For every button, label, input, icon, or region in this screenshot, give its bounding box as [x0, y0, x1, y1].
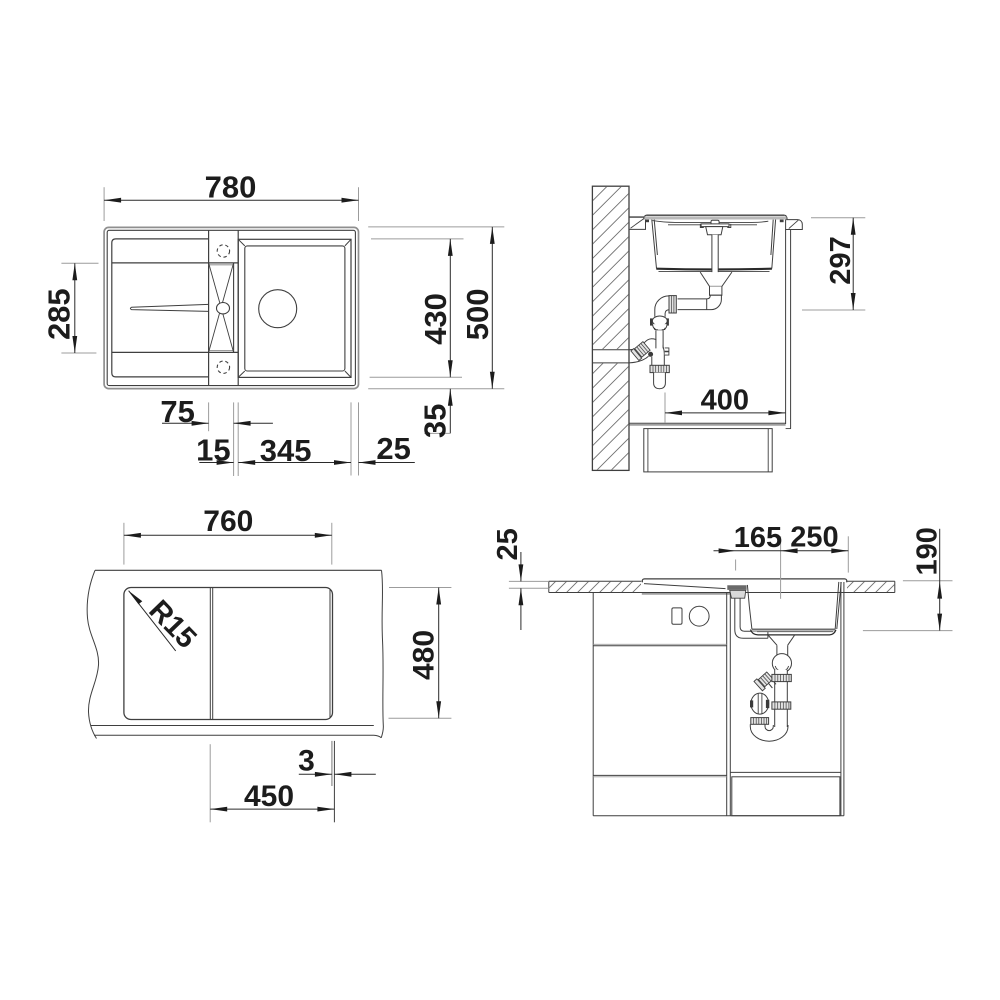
- svg-text:285: 285: [42, 288, 77, 340]
- svg-text:75: 75: [160, 394, 194, 429]
- svg-text:760: 760: [203, 505, 253, 538]
- svg-text:25: 25: [492, 528, 524, 560]
- svg-text:165: 165: [734, 522, 782, 554]
- svg-text:400: 400: [701, 385, 749, 417]
- svg-text:430: 430: [418, 293, 453, 345]
- svg-text:190: 190: [911, 527, 943, 575]
- svg-text:345: 345: [260, 433, 312, 468]
- svg-text:25: 25: [376, 431, 410, 466]
- svg-text:780: 780: [205, 169, 257, 204]
- svg-text:250: 250: [790, 522, 838, 554]
- svg-text:450: 450: [244, 780, 294, 813]
- svg-text:297: 297: [825, 236, 857, 284]
- svg-text:480: 480: [407, 630, 440, 680]
- svg-text:35: 35: [418, 404, 453, 438]
- svg-text:3: 3: [298, 744, 315, 777]
- svg-text:15: 15: [196, 433, 230, 468]
- svg-text:500: 500: [460, 289, 495, 341]
